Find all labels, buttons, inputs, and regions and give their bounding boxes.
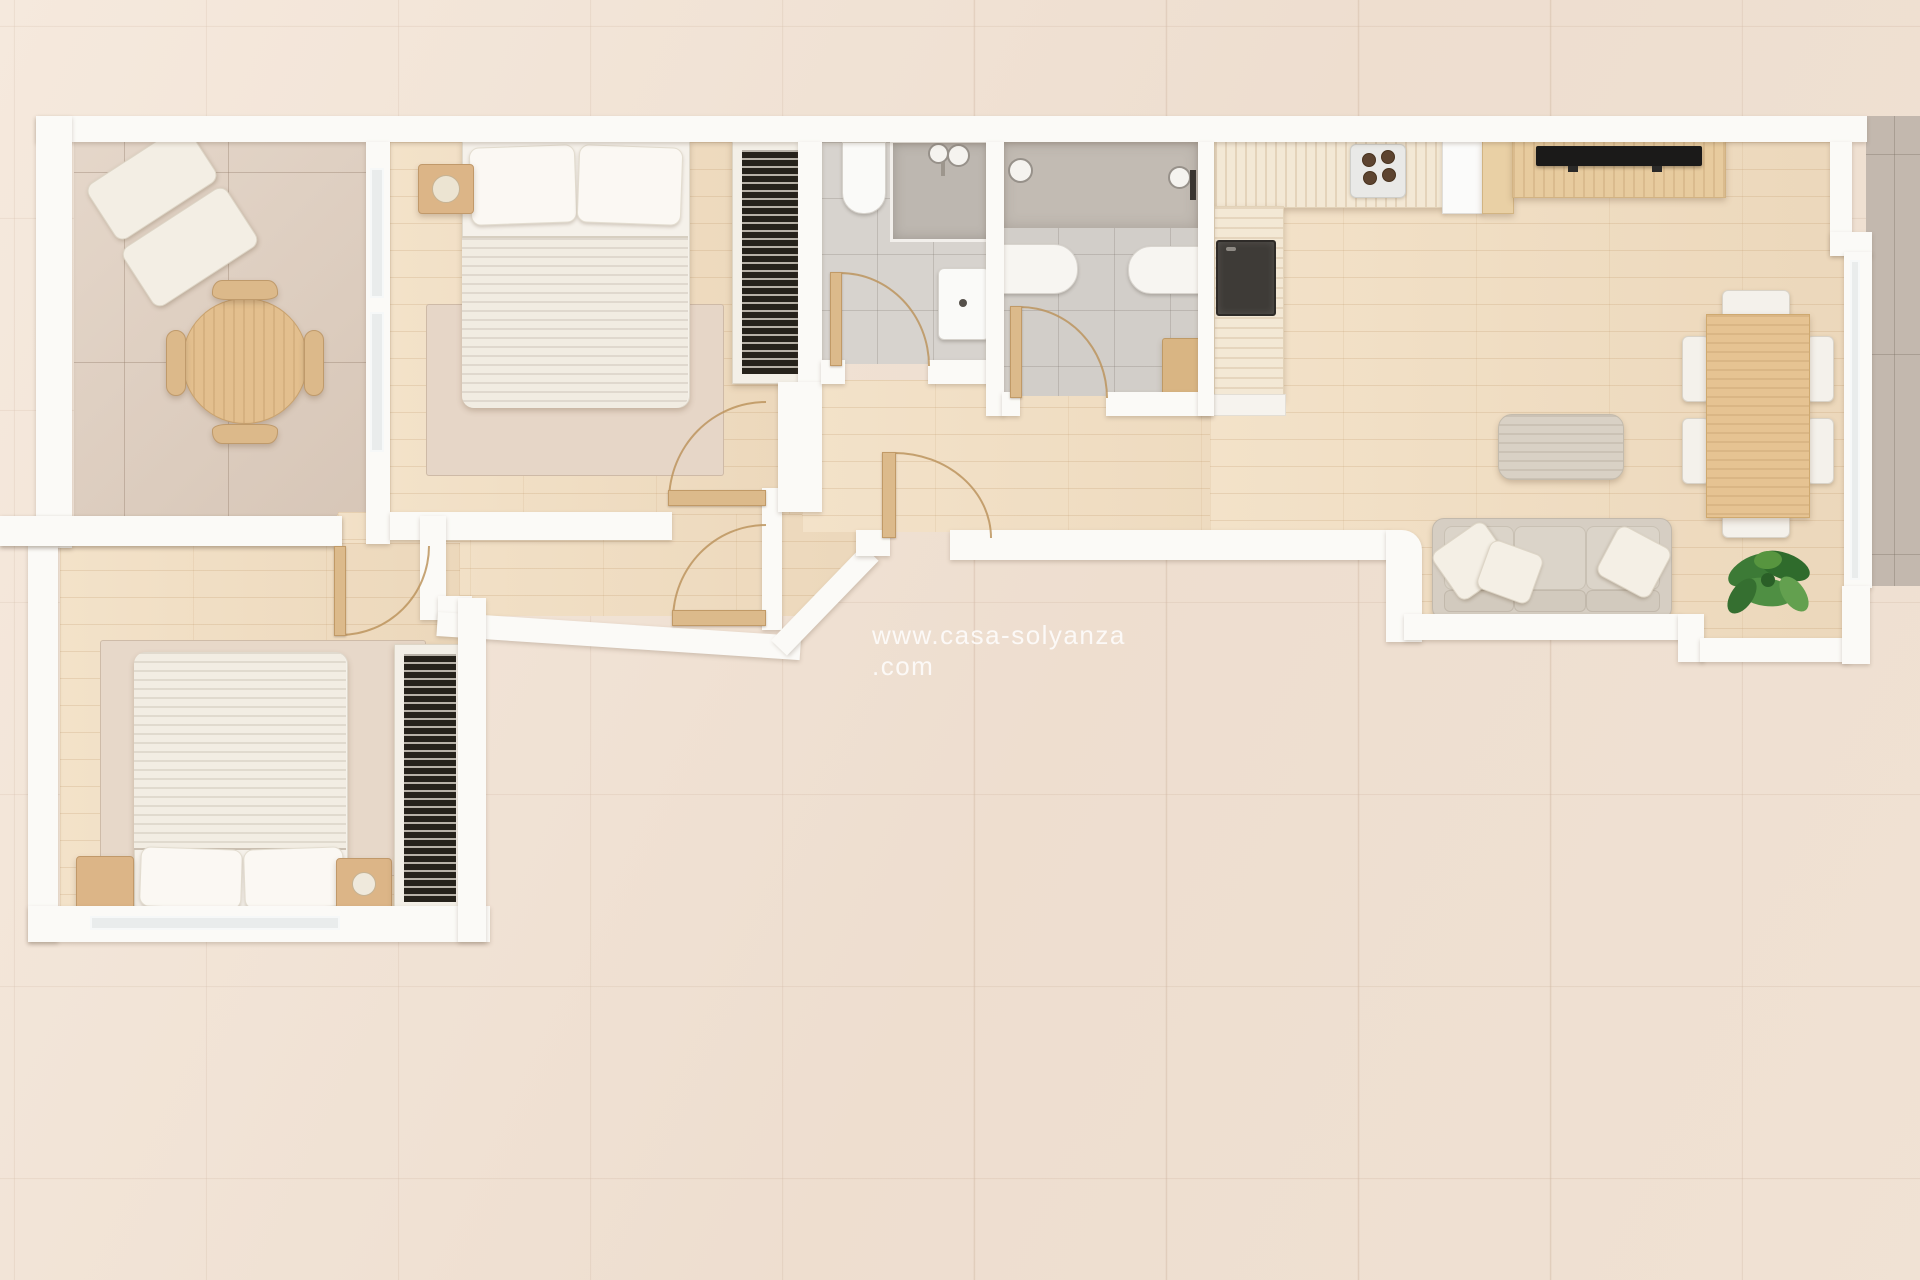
- bedroom1-pillow-right: [577, 144, 684, 226]
- dining-table: [1706, 314, 1810, 518]
- round-dining-table: [182, 298, 308, 424]
- floor-plan-canvas: www.casa-solyanza .com: [0, 0, 1920, 1280]
- wall-bedroom1-right-lower: [778, 382, 822, 512]
- window-terrace-divider-pane: [370, 168, 384, 298]
- sink-tap-icon: [1226, 247, 1236, 251]
- hall-door-leaf: [672, 610, 766, 626]
- bedroom1-door-leaf: [668, 490, 766, 506]
- bathroom2-shower-zone: [1002, 142, 1198, 228]
- wall-living-bottom-right: [1700, 638, 1850, 662]
- kitchen-counter-top: [1214, 140, 1444, 208]
- tv-screen: [1536, 146, 1702, 166]
- bedroom1-duvet: [462, 236, 688, 408]
- kitchen-counter-end-panel: [1212, 394, 1286, 416]
- shower-head-icon: [1008, 158, 1033, 183]
- hob-burner-icon: [1381, 150, 1395, 164]
- hob-burner-icon: [1363, 171, 1377, 185]
- radiator-fins-icon: [404, 654, 456, 902]
- front-door-leaf: [882, 452, 896, 538]
- bedroom2-radiator: [394, 644, 466, 912]
- bathroom1-toilet: [842, 142, 886, 214]
- kitchen-sink: [1216, 240, 1276, 316]
- wall-bedroom2-right: [458, 598, 486, 942]
- bedroom1-table-lamp: [432, 175, 460, 203]
- bathroom1-door-leaf: [830, 272, 842, 366]
- bathroom2-toilet: [1002, 244, 1078, 294]
- bedroom2-nightstand-left: [76, 856, 134, 910]
- wall-bathrooms-divider: [986, 142, 1004, 416]
- wall-living-right-lower: [1842, 586, 1870, 664]
- radiator-fins-icon: [742, 150, 800, 374]
- dining-chair-right-1: [1806, 336, 1834, 402]
- wall-top: [36, 116, 1867, 142]
- wall-sofa-recess-bottom: [1404, 614, 1682, 640]
- bathroom2-door-leaf: [1010, 306, 1022, 398]
- bedroom2-pillow-right: [243, 846, 345, 909]
- hob-burner-icon: [1362, 153, 1376, 167]
- fridge: [1442, 140, 1484, 214]
- potted-plant-icon: [1714, 538, 1822, 628]
- kitchen-tall-cabinet: [1482, 140, 1514, 214]
- bedroom2-duvet: [134, 652, 346, 850]
- dining-chair-right-2: [1806, 418, 1834, 484]
- bedroom2-pillow-left: [139, 846, 243, 910]
- terrace-chair-left: [166, 330, 186, 396]
- washbasin-drain-icon: [959, 299, 967, 307]
- wall-bathroom1-left: [798, 142, 822, 382]
- wall-shelf-icon: [1190, 170, 1196, 200]
- terrace-chair-right: [304, 330, 324, 396]
- shower-head-icon: [1168, 166, 1191, 189]
- bedroom2-door-leaf: [334, 546, 346, 636]
- tv-leg-icon: [1568, 166, 1578, 172]
- bedroom1-pillow-left: [469, 144, 578, 226]
- wall-left-lower: [28, 544, 58, 942]
- watermark-text: www.casa-solyanza .com: [872, 620, 1192, 682]
- wall-entry-front: [950, 530, 1390, 560]
- exterior-gray-tiles: [1866, 116, 1920, 586]
- gas-hob: [1350, 144, 1406, 198]
- bathroom2-bidet: [1128, 246, 1204, 294]
- wall-bathroom2-right: [1198, 142, 1214, 416]
- bedroom2-nightstand-decor: [352, 872, 376, 896]
- wall-bedroom2-top: [0, 516, 342, 546]
- terrace-chair-top: [212, 280, 278, 300]
- wall-bathroom2-bottom-right: [1106, 392, 1212, 416]
- pouf-coffee-table: [1498, 414, 1624, 480]
- window-bedroom2-bottom-pane: [90, 916, 340, 930]
- shower-head-icon: [928, 143, 949, 164]
- terrace-chair-bottom: [212, 424, 278, 444]
- hob-burner-icon: [1382, 168, 1396, 182]
- shower-head-icon: [947, 144, 970, 167]
- tv-leg-icon: [1652, 166, 1662, 172]
- wall-left-upper: [36, 116, 72, 548]
- window-terrace-divider-pane: [370, 312, 384, 452]
- wall-bathroom1-bottom-right: [928, 360, 990, 384]
- window-living-right-pane: [1850, 260, 1860, 580]
- shower-hose-icon: [941, 162, 945, 176]
